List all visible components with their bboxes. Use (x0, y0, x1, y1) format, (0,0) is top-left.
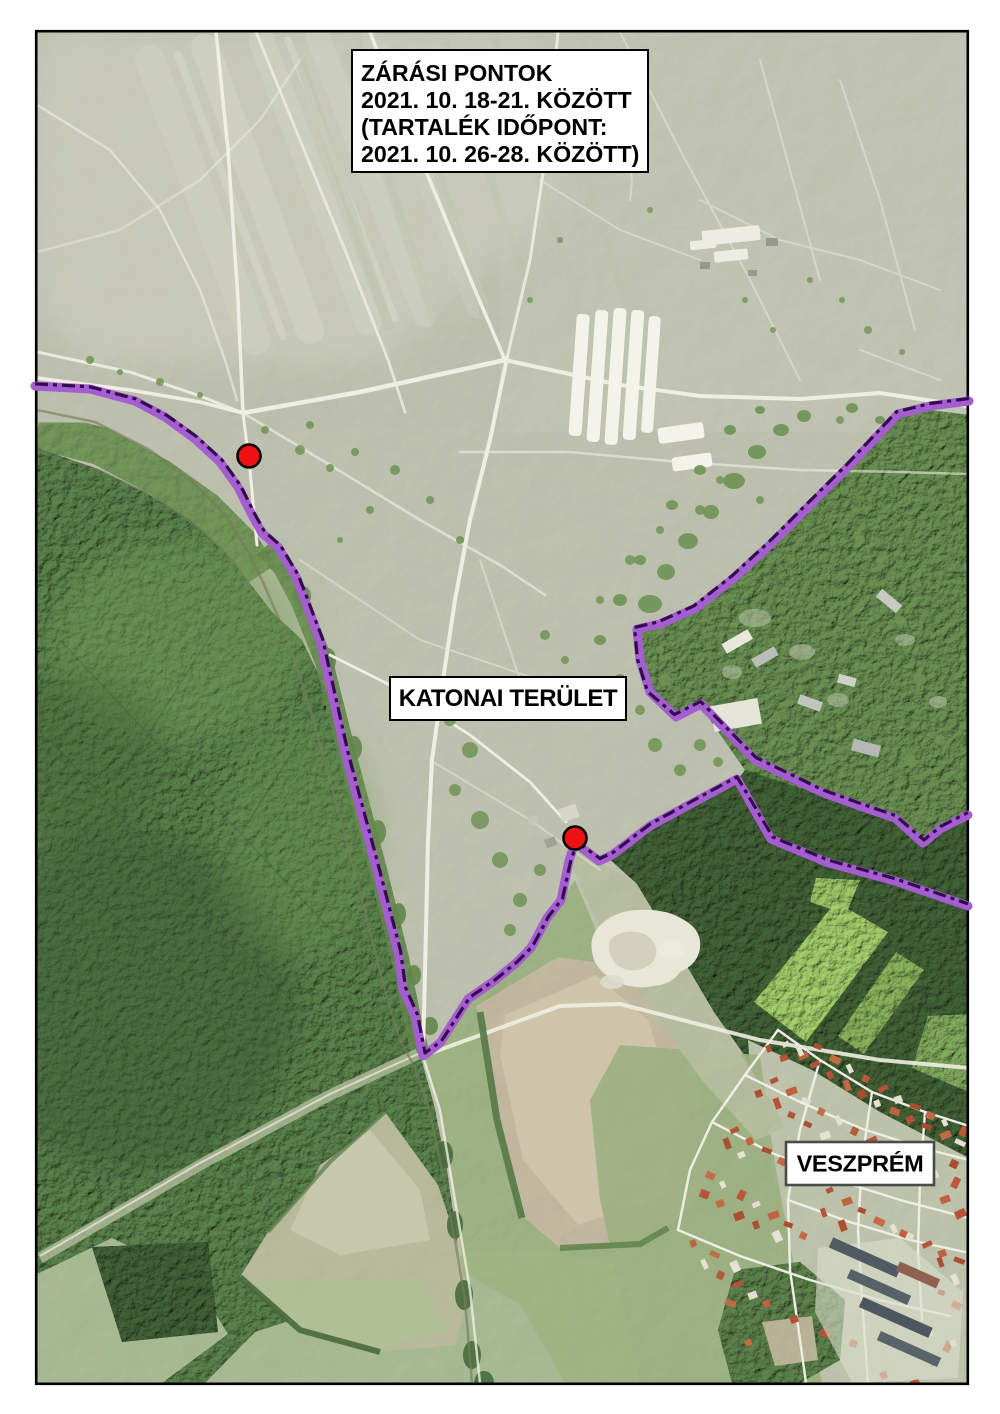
svg-text:ZÁRÁSI PONTOK: ZÁRÁSI PONTOK (361, 59, 553, 86)
svg-text:2021. 10. 18-21. KÖZÖTT: 2021. 10. 18-21. KÖZÖTT (361, 87, 632, 113)
svg-text:(TARTALÉK IDŐPONT:: (TARTALÉK IDŐPONT: (361, 113, 607, 140)
svg-text:KATONAI TERÜLET: KATONAI TERÜLET (399, 685, 618, 712)
svg-text:VESZPRÉM: VESZPRÉM (797, 1150, 924, 1177)
svg-text:2021. 10. 26-28. KÖZÖTT): 2021. 10. 26-28. KÖZÖTT) (361, 141, 639, 167)
